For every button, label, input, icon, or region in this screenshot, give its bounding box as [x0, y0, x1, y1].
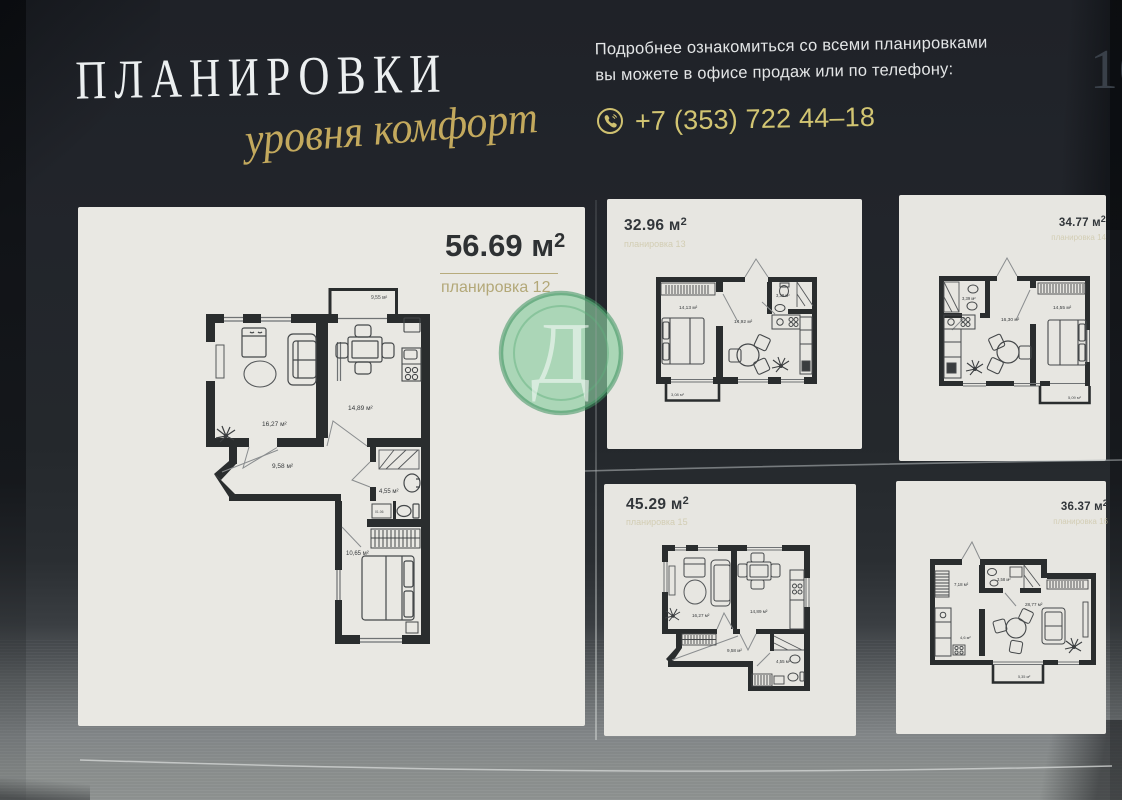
svg-text:28,77 м²: 28,77 м²: [1025, 602, 1043, 607]
svg-text:01.06: 01.06: [375, 510, 384, 514]
svg-text:9,58 м²: 9,58 м²: [727, 648, 742, 653]
svg-text:5,09 м²: 5,09 м²: [1068, 395, 1082, 400]
svg-text:16,27 м²: 16,27 м²: [262, 421, 288, 428]
svg-text:14,13 м²: 14,13 м²: [679, 305, 698, 311]
svg-text:5,35 м²: 5,35 м²: [1018, 675, 1031, 679]
svg-text:3,58 м²: 3,58 м²: [997, 577, 1011, 582]
svg-text:3,08 м²: 3,08 м²: [671, 392, 685, 397]
svg-text:14,89 м²: 14,89 м²: [348, 405, 374, 412]
svg-text:9,58 м²: 9,58 м²: [272, 463, 294, 470]
svg-text:4,55 м²: 4,55 м²: [776, 659, 791, 664]
svg-text:9,55 м²: 9,55 м²: [371, 295, 388, 301]
svg-text:Д: Д: [531, 306, 591, 403]
svg-text:16,30 м²: 16,30 м²: [1001, 317, 1020, 323]
svg-text:4,55 м²: 4,55 м²: [379, 489, 398, 495]
svg-text:4,6 м²: 4,6 м²: [960, 635, 971, 640]
svg-text:3,38 м²: 3,38 м²: [776, 293, 790, 298]
svg-text:3,39 м²: 3,39 м²: [962, 296, 976, 301]
svg-text:14,92 м²: 14,92 м²: [734, 319, 753, 325]
svg-text:14,89 м²: 14,89 м²: [750, 609, 768, 614]
svg-text:14,55 м²: 14,55 м²: [1053, 305, 1072, 311]
svg-text:16,27 м²: 16,27 м²: [692, 613, 710, 618]
svg-text:10,65 м²: 10,65 м²: [346, 551, 369, 557]
svg-text:7,18 м²: 7,18 м²: [954, 582, 969, 587]
